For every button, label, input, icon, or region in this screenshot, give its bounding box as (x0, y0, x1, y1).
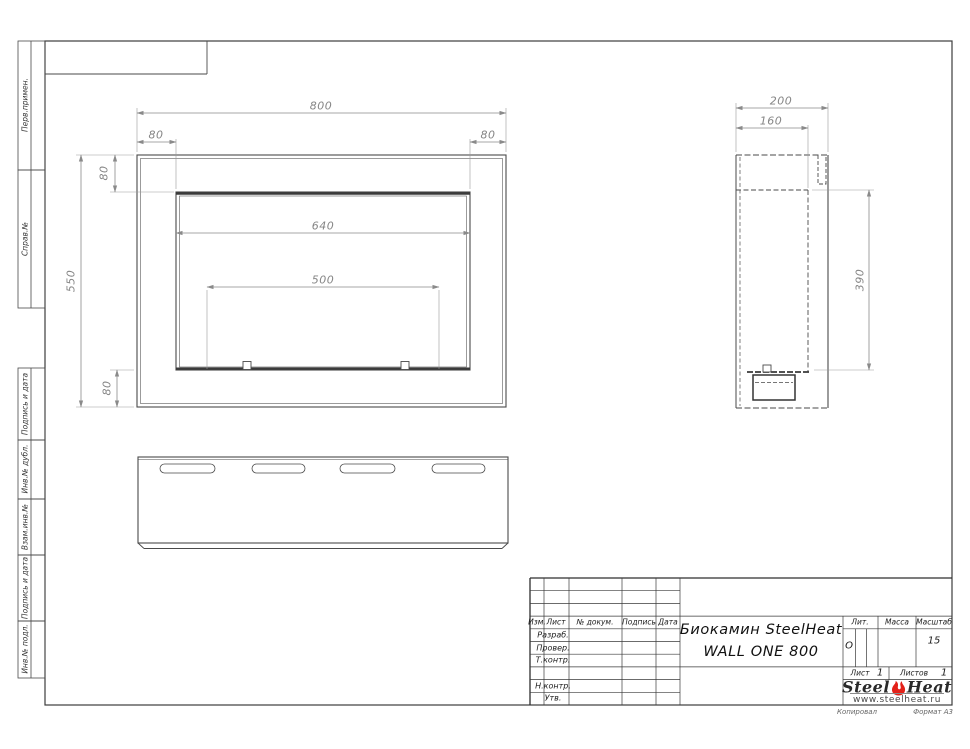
dim-side-inner-depth: 160 (760, 115, 783, 128)
footer-format-label: Формат А3 (913, 708, 953, 716)
dim-side-depth: 200 (770, 95, 793, 108)
margin-label-sprav-no: Справ.№ (21, 222, 30, 256)
margin-label-podpis-data-1: Подпись и дата (21, 373, 30, 435)
tb-col-doc: № докум. (577, 618, 614, 627)
tb-col-izm: Изм. (528, 618, 546, 627)
tb-mass-label: Масса (885, 618, 909, 627)
logo-url: www.steelheat.ru (850, 693, 944, 705)
tb-scale-value: 15 (928, 636, 941, 647)
tb-title-line1: Биокамин SteelHeat (680, 622, 842, 638)
margin-label-inv-podl: Инв.№ подл. (21, 624, 30, 673)
dim-front-burner-width: 500 (312, 274, 335, 287)
tb-role-tcontrol: Т.контр. (536, 656, 571, 665)
dim-front-flange-bottom: 80 (101, 381, 114, 396)
drawing-sheet: Перв.примен. Справ.№ Подпись и дата Инв.… (0, 0, 970, 749)
tb-sheets-label: Листов (900, 669, 928, 678)
tb-sheet-label: Лист (850, 669, 869, 678)
dim-front-height: 550 (65, 270, 78, 293)
dim-front-opening-width: 640 (312, 220, 335, 233)
tb-role-approved: Утв. (545, 694, 562, 703)
dim-front-flange-right: 80 (481, 129, 496, 142)
tb-col-date: Дата (658, 618, 677, 627)
dim-front-flange-top: 80 (98, 166, 111, 181)
margin-label-inv-dubl: Инв.№ дубл. (21, 445, 30, 494)
tb-title-line2: WALL ONE 800 (703, 644, 818, 660)
tb-role-checked: Провер. (536, 644, 569, 653)
tb-role-ncontrol: Н.контр. (535, 682, 571, 691)
margin-label-vzam-inv: Взам.инв.№ (21, 504, 30, 550)
dim-side-opening-height: 390 (854, 269, 867, 292)
tb-col-list: Лист (546, 618, 565, 627)
tb-role-developed: Разраб. (537, 631, 568, 640)
tb-col-sign: Подпись (622, 618, 656, 627)
footer-copied-label: Копировал (837, 708, 877, 716)
dim-front-flange-left: 80 (149, 129, 164, 142)
margin-label-perv-primen: Перв.примен. (21, 78, 30, 132)
tb-scale-label: Масштаб (916, 618, 952, 627)
margin-label-podpis-data-2: Подпись и дата (21, 557, 30, 619)
tb-lit-label: Лит. (851, 618, 868, 627)
tb-lit-value: О (845, 641, 853, 652)
dim-front-width: 800 (310, 100, 333, 113)
